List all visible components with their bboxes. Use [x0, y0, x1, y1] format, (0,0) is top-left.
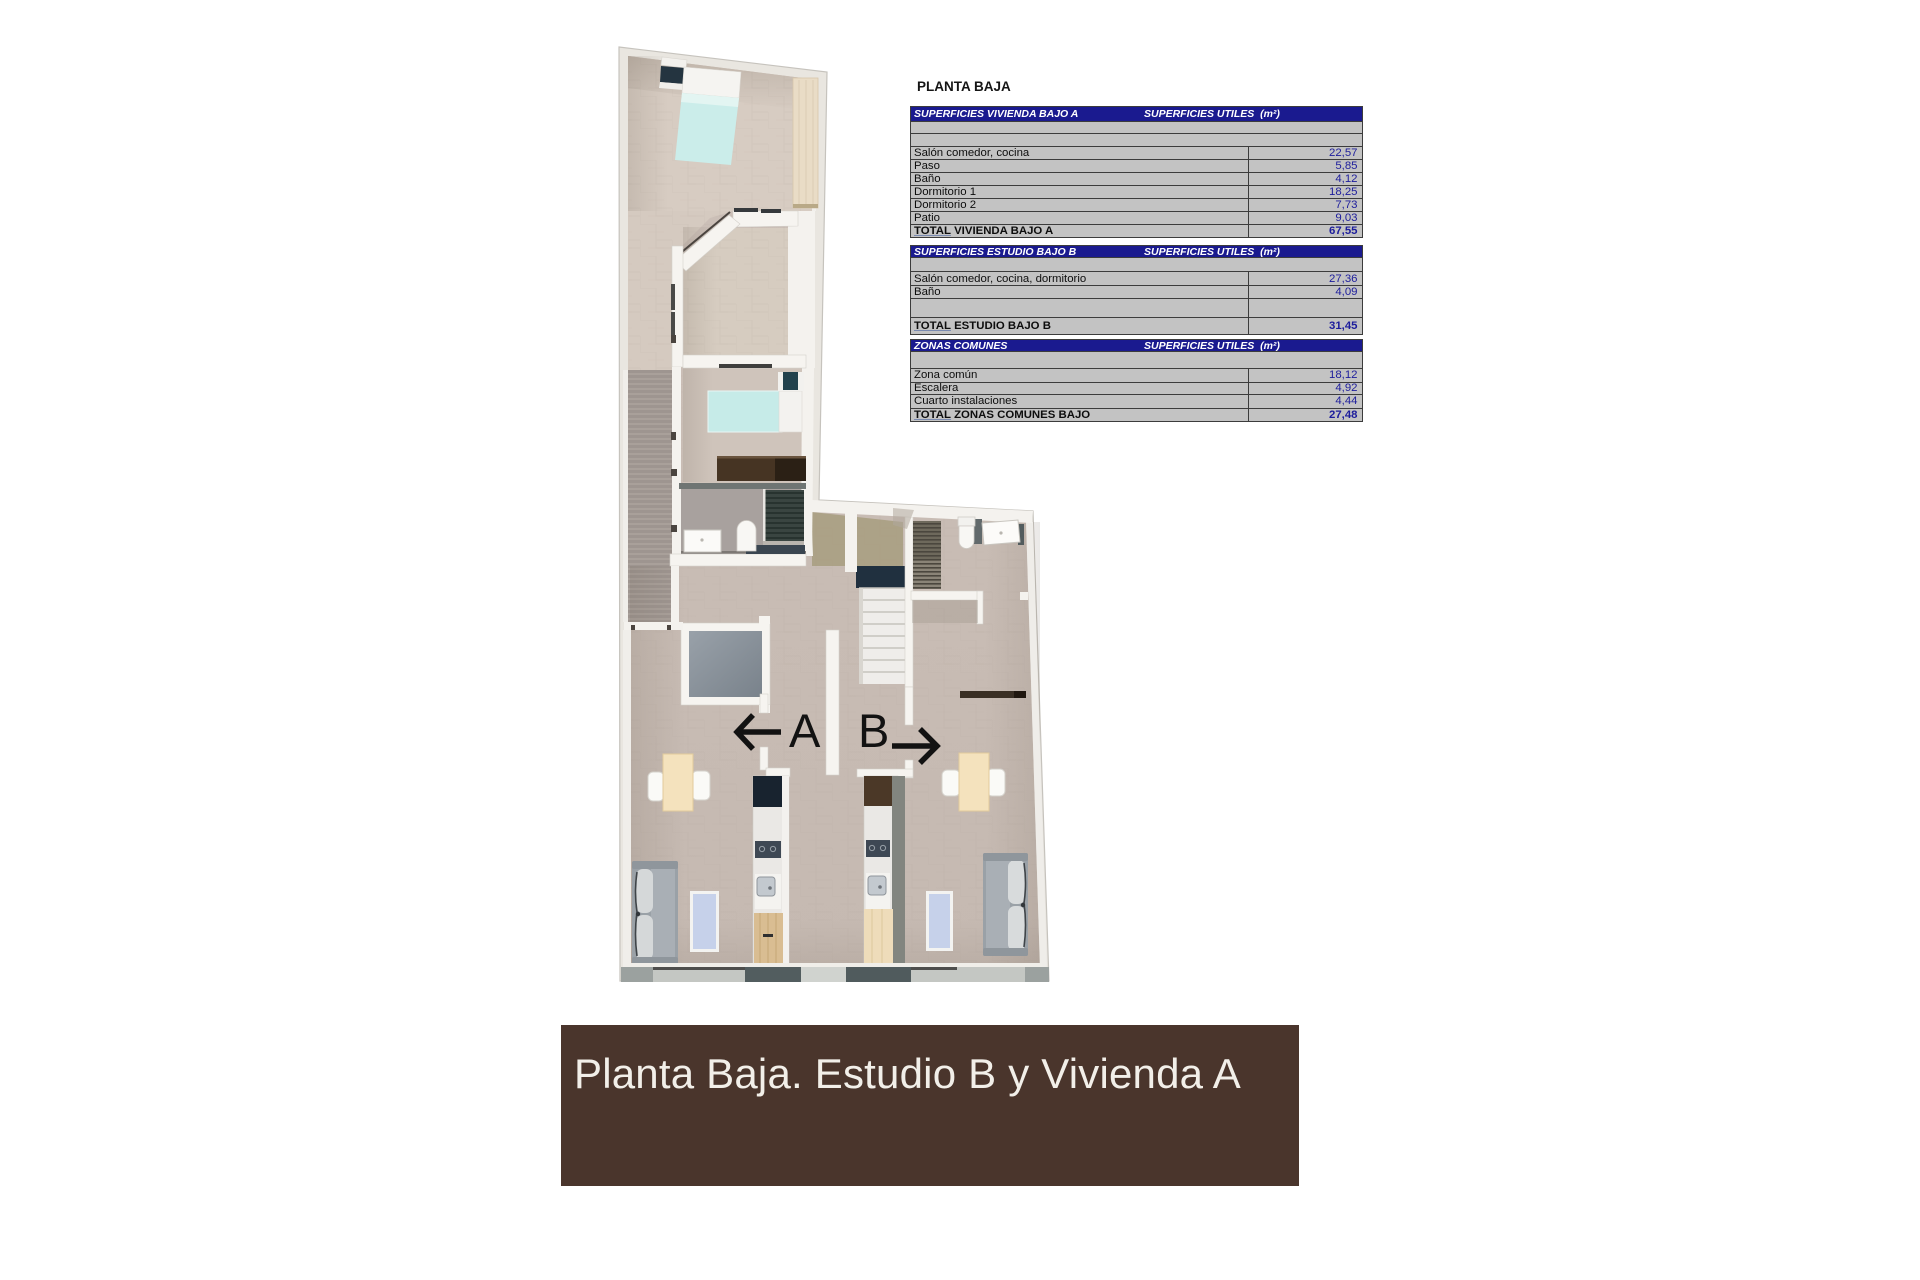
svg-text:A: A	[789, 704, 821, 757]
svg-text:B: B	[858, 704, 889, 757]
